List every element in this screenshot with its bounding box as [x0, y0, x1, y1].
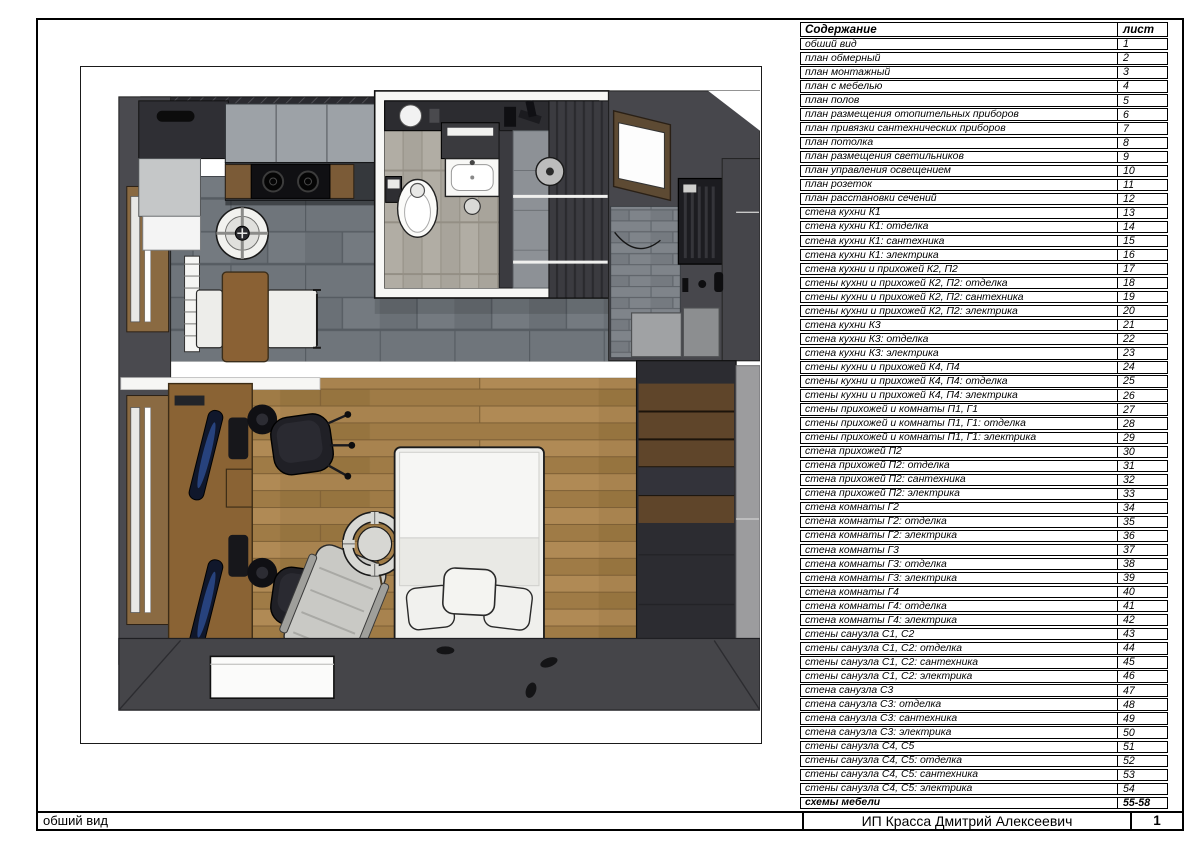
kitchen-ceiling-fan [216, 207, 268, 259]
toc-row-sheet-number: 39 [1118, 573, 1167, 583]
toc-row-sheet-number: 4 [1118, 81, 1167, 91]
toc-row: стены кухни и прихожей К4, П4: отделка 2… [800, 375, 1168, 387]
toc-row-sheet-number: 20 [1118, 306, 1167, 316]
toc-row-label: стена комнаты Г3: электрика [801, 573, 1118, 583]
toc-row: стена комнаты Г3: отделка 38 [800, 558, 1168, 570]
toc-row: стена комнаты Г4 40 [800, 586, 1168, 598]
toc-row-sheet-number: 34 [1118, 503, 1167, 513]
toc-row-sheet-number: 23 [1118, 348, 1167, 358]
toc-row: стена санузла С3 47 [800, 684, 1168, 696]
toc-row-label: стены санузла С1, С2: отделка [801, 643, 1118, 653]
toc-row-sheet-number: 18 [1118, 278, 1167, 288]
floor-plan-rendering [81, 67, 760, 742]
toc-row-label: план размещения отопительных приборов [801, 109, 1118, 119]
toc-row-label: стена комнаты Г4: электрика [801, 615, 1118, 625]
toc-row-sheet-number: 42 [1118, 615, 1167, 625]
toc-row-sheet-number: 16 [1118, 250, 1167, 260]
toc-row-label: стена кухни К3: отделка [801, 334, 1118, 344]
toc-row: стена прихожей П2: электрика 33 [800, 488, 1168, 500]
toc-row-label: стена комнаты Г4: отделка [801, 601, 1118, 611]
toc-row-label: стены прихожей и комнаты П1, Г1: отделка [801, 418, 1118, 428]
toc-row: стена комнаты Г3 37 [800, 544, 1168, 556]
partition-top-highlight [119, 362, 639, 378]
toc-row-label: стены кухни и прихожей К4, П4: электрика [801, 390, 1118, 400]
toc-row: стена комнаты Г2 34 [800, 502, 1168, 514]
toc-row: стена комнаты Г4: отделка 41 [800, 600, 1168, 612]
toc-row-label: стены кухни и прихожей К2, П2: отделка [801, 278, 1118, 288]
bottom-wall [119, 638, 760, 710]
toc-row-sheet-number: 35 [1118, 517, 1167, 527]
toc-row-sheet-number: 27 [1118, 404, 1167, 414]
toc-title: Содержание [801, 23, 1118, 36]
toc-row: схемы мебели 55-58 [800, 797, 1168, 809]
toc-row: стены кухни и прихожей К4, П4: электрика… [800, 389, 1168, 401]
toc-row-label: план розеток [801, 180, 1118, 190]
toc-row: стена комнаты Г4: электрика 42 [800, 614, 1168, 626]
toc-row-sheet-number: 3 [1118, 67, 1167, 77]
toc-row: стены санузла С1, С2: электрика 46 [800, 670, 1168, 682]
toc-row-label: план управления освещением [801, 166, 1118, 176]
toc-row-label: стены санузла С1, С2: сантехника [801, 657, 1118, 667]
toc-row-label: стена прихожей П2: электрика [801, 489, 1118, 499]
toc-row-sheet-number: 41 [1118, 601, 1167, 611]
toc-row: стена кухни К3 21 [800, 319, 1168, 331]
table-of-contents: Содержание лист обший вид 1 план обмерны… [800, 22, 1168, 811]
toc-row-label: стена комнаты Г3: отделка [801, 559, 1118, 569]
toc-row: стены кухни и прихожей К2, П2: отделка 1… [800, 277, 1168, 289]
toc-sheet-column-header: лист [1118, 23, 1167, 36]
toc-row-sheet-number: 6 [1118, 109, 1167, 119]
toc-row: стена кухни К1: сантехника 15 [800, 235, 1168, 247]
toc-row-label: стена санузла С3: отделка [801, 699, 1118, 709]
toc-row: план размещения светильников 9 [800, 151, 1168, 163]
toc-row-sheet-number: 12 [1118, 194, 1167, 204]
toc-row-label: стена санузла С3: электрика [801, 727, 1118, 737]
toc-row-sheet-number: 13 [1118, 208, 1167, 218]
toc-row-label: стены санузла С4, С5 [801, 742, 1118, 752]
toc-row-sheet-number: 7 [1118, 123, 1167, 133]
toc-row-label: стена санузла С3 [801, 685, 1118, 695]
toc-row-label: схемы мебели [801, 798, 1118, 808]
toc-row: стена прихожей П2: сантехника 32 [800, 474, 1168, 486]
toc-row: стена комнаты Г2: отделка 35 [800, 516, 1168, 528]
toc-row-sheet-number: 8 [1118, 138, 1167, 148]
view-name-cell: обший вид [38, 813, 804, 829]
toc-row-label: стены санузла С4, С5: электрика [801, 784, 1118, 794]
toc-row: стена санузла С3: электрика 50 [800, 726, 1168, 738]
toc-row: план расстановки сечений 12 [800, 193, 1168, 205]
toc-row-sheet-number: 21 [1118, 320, 1167, 330]
toc-row-sheet-number: 11 [1118, 180, 1167, 190]
toc-row-sheet-number: 46 [1118, 671, 1167, 681]
toc-row: стены санузла С1, С2: отделка 44 [800, 642, 1168, 654]
toc-row-sheet-number: 32 [1118, 475, 1167, 485]
toc-row: план розеток 11 [800, 179, 1168, 191]
toc-row: план обмерный 2 [800, 52, 1168, 64]
toc-row-label: стена комнаты Г2 [801, 503, 1118, 513]
toc-row-sheet-number: 14 [1118, 222, 1167, 232]
toc-row-label: план обмерный [801, 53, 1118, 63]
company-name-cell: ИП Красса Дмитрий Алексеевич [804, 813, 1132, 829]
bathroom-area [375, 91, 609, 314]
toc-row-sheet-number: 50 [1118, 727, 1167, 737]
toc-row-label: стена кухни К1: сантехника [801, 236, 1118, 246]
toc-row: обший вид 1 [800, 38, 1168, 50]
toc-row-sheet-number: 45 [1118, 657, 1167, 667]
toc-row-sheet-number: 9 [1118, 152, 1167, 162]
toc-row-sheet-number: 30 [1118, 447, 1167, 457]
toc-row-sheet-number: 15 [1118, 236, 1167, 246]
toc-row-sheet-number: 26 [1118, 390, 1167, 400]
album-sheet-page: Содержание лист обший вид 1 план обмерны… [0, 0, 1200, 849]
toc-row-sheet-number: 31 [1118, 461, 1167, 471]
toc-row-sheet-number: 37 [1118, 545, 1167, 555]
toc-row: стена кухни К3: электрика 23 [800, 347, 1168, 359]
toc-row-sheet-number: 53 [1118, 770, 1167, 780]
toc-row-label: стены кухни и прихожей К4, П4: отделка [801, 376, 1118, 386]
toc-row: план потолка 8 [800, 137, 1168, 149]
toc-row-label: стены санузла С1, С2: электрика [801, 671, 1118, 681]
toc-row-label: стена санузла С3: сантехника [801, 713, 1118, 723]
toc-row: стены санузла С4, С5 51 [800, 741, 1168, 753]
toc-row: стены кухни и прихожей К4, П4 24 [800, 361, 1168, 373]
toc-row-label: план потолка [801, 138, 1118, 148]
toc-row: стена санузла С3: отделка 48 [800, 698, 1168, 710]
toc-row: стена кухни К3: отделка 22 [800, 333, 1168, 345]
title-block: обший вид ИП Красса Дмитрий Алексеевич 1 [36, 811, 1184, 831]
toc-row: стена кухни К1: электрика 16 [800, 249, 1168, 261]
toc-row-sheet-number: 36 [1118, 531, 1167, 541]
toc-row-sheet-number: 44 [1118, 643, 1167, 653]
toc-row: стены санузла С4, С5: отделка 52 [800, 755, 1168, 767]
toc-row-label: стена комнаты Г2: электрика [801, 531, 1118, 541]
toc-row-sheet-number: 28 [1118, 418, 1167, 428]
toc-row: план с мебелью 4 [800, 80, 1168, 92]
toc-row-label: стены санузла С4, С5: сантехника [801, 770, 1118, 780]
toc-header-row: Содержание лист [800, 22, 1168, 37]
toc-row-label: план с мебелью [801, 81, 1118, 91]
toc-row-label: стена комнаты Г2: отделка [801, 517, 1118, 527]
toc-row: план управления освещением 10 [800, 165, 1168, 177]
toc-row: стена санузла С3: сантехника 49 [800, 712, 1168, 724]
bathroom-sink [445, 159, 499, 197]
hallway-area [609, 91, 760, 361]
toc-row: стена прихожей П2 30 [800, 446, 1168, 458]
toc-row: стены прихожей и комнаты П1, Г1 27 [800, 403, 1168, 415]
toc-row-sheet-number: 19 [1118, 292, 1167, 302]
toc-row-label: стена кухни и прихожей К2, П2 [801, 264, 1118, 274]
toc-row-sheet-number: 49 [1118, 713, 1167, 723]
toc-row-sheet-number: 25 [1118, 376, 1167, 386]
drawing-viewport [80, 66, 762, 744]
toc-row-label: стены кухни и прихожей К2, П2: сантехник… [801, 292, 1118, 302]
toc-row-sheet-number: 54 [1118, 784, 1167, 794]
toc-row: стена кухни К1: отделка 14 [800, 221, 1168, 233]
toc-row-label: стена прихожей П2: отделка [801, 461, 1118, 471]
slatted-cabinet [678, 179, 722, 265]
toc-row-label: стены кухни и прихожей К4, П4 [801, 362, 1118, 372]
sheet-number-cell: 1 [1132, 813, 1182, 829]
toc-row: план привязки сантехнических приборов 7 [800, 122, 1168, 134]
toc-row-sheet-number: 52 [1118, 756, 1167, 766]
toc-row-label: план привязки сантехнических приборов [801, 123, 1118, 133]
toc-row-label: стены кухни и прихожей К2, П2: электрика [801, 306, 1118, 316]
toc-row-label: стена прихожей П2 [801, 447, 1118, 457]
toc-row-label: стена кухни К1 [801, 208, 1118, 218]
toc-row-label: план расстановки сечений [801, 194, 1118, 204]
toc-row-sheet-number: 33 [1118, 489, 1167, 499]
toc-row: стены кухни и прихожей К2, П2: электрика… [800, 305, 1168, 317]
toc-row-label: стены санузла С1, С2 [801, 629, 1118, 639]
toc-row-sheet-number: 22 [1118, 334, 1167, 344]
toc-row: план полов 5 [800, 94, 1168, 106]
toc-row-sheet-number: 43 [1118, 629, 1167, 639]
toc-row-sheet-number: 2 [1118, 53, 1167, 63]
toc-row-sheet-number: 5 [1118, 95, 1167, 105]
toc-row-label: план монтажный [801, 67, 1118, 77]
toc-row: стены санузла С1, С2: сантехника 45 [800, 656, 1168, 668]
toc-row: стены прихожей и комнаты П1, Г1: отделка… [800, 417, 1168, 429]
toc-row-sheet-number: 48 [1118, 699, 1167, 709]
toc-row-label: стены прихожей и комнаты П1, Г1: электри… [801, 433, 1118, 443]
toc-row: стена кухни К1 13 [800, 207, 1168, 219]
toc-row-sheet-number: 24 [1118, 362, 1167, 372]
toc-row-label: план размещения светильников [801, 152, 1118, 162]
toc-row-label: стена кухни К3 [801, 320, 1118, 330]
toc-row-sheet-number: 55-58 [1118, 798, 1167, 808]
toc-row-label: стены прихожей и комнаты П1, Г1 [801, 404, 1118, 414]
toc-row-label: стена комнаты Г4 [801, 587, 1118, 597]
toc-row-label: стена кухни К3: электрика [801, 348, 1118, 358]
toc-row-label: стена комнаты Г3 [801, 545, 1118, 555]
toc-row: стены прихожей и комнаты П1, Г1: электри… [800, 432, 1168, 444]
toc-row-sheet-number: 51 [1118, 742, 1167, 752]
toc-row: план размещения отопительных приборов 6 [800, 108, 1168, 120]
toc-row: стены кухни и прихожей К2, П2: сантехник… [800, 291, 1168, 303]
toc-row: стена комнаты Г2: электрика 36 [800, 530, 1168, 542]
toc-row-sheet-number: 1 [1118, 39, 1167, 49]
toc-row: стена кухни и прихожей К2, П2 17 [800, 263, 1168, 275]
toc-row-label: стены санузла С4, С5: отделка [801, 756, 1118, 766]
toc-row-label: стена прихожей П2: сантехника [801, 475, 1118, 485]
toc-row: стены санузла С4, С5: электрика 54 [800, 783, 1168, 795]
toc-row-sheet-number: 38 [1118, 559, 1167, 569]
washing-machine-drum [400, 105, 422, 127]
toc-row-label: план полов [801, 95, 1118, 105]
toc-row: стены санузла С4, С5: сантехника 53 [800, 769, 1168, 781]
toc-row-label: стена кухни К1: отделка [801, 222, 1118, 232]
toc-row-sheet-number: 17 [1118, 264, 1167, 274]
toc-row-sheet-number: 40 [1118, 587, 1167, 597]
toc-row: стены санузла С1, С2 43 [800, 628, 1168, 640]
toc-row-label: стена кухни К1: электрика [801, 250, 1118, 260]
toc-row-sheet-number: 29 [1118, 433, 1167, 443]
toc-row: стена комнаты Г3: электрика 39 [800, 572, 1168, 584]
radiator [210, 656, 333, 698]
toc-row: стена прихожей П2: отделка 31 [800, 460, 1168, 472]
toc-row-label: обший вид [801, 39, 1118, 49]
toc-row: план монтажный 3 [800, 66, 1168, 78]
toc-row-sheet-number: 10 [1118, 166, 1167, 176]
toc-row-sheet-number: 47 [1118, 685, 1167, 695]
